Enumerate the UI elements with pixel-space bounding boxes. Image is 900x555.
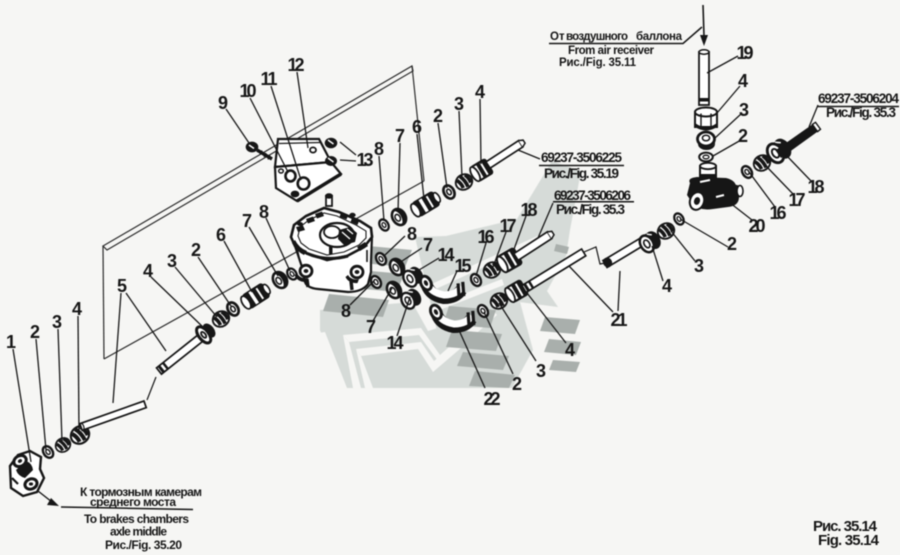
svg-text:16: 16	[770, 203, 787, 223]
svg-text:4: 4	[475, 82, 485, 102]
svg-text:среднего моста: среднего моста	[90, 495, 176, 509]
svg-text:21: 21	[611, 310, 628, 330]
svg-text:4: 4	[72, 299, 82, 319]
svg-text:69237-3506225: 69237-3506225	[541, 150, 622, 165]
svg-text:Fig. 35.14: Fig. 35.14	[818, 532, 880, 549]
svg-text:5: 5	[117, 276, 127, 296]
svg-text:Рис./Fig. 35.3: Рис./Fig. 35.3	[556, 202, 625, 217]
svg-text:7: 7	[366, 317, 376, 337]
svg-text:10: 10	[240, 81, 257, 101]
svg-text:3: 3	[454, 94, 464, 114]
svg-text:3: 3	[52, 312, 62, 332]
svg-text:axle middle: axle middle	[110, 525, 167, 539]
svg-text:14: 14	[387, 333, 404, 353]
svg-text:11: 11	[261, 69, 278, 89]
svg-text:8: 8	[259, 202, 269, 222]
svg-text:18: 18	[521, 200, 538, 220]
svg-text:3: 3	[536, 361, 546, 381]
svg-text:2: 2	[727, 234, 737, 254]
svg-text:2: 2	[191, 240, 201, 260]
svg-text:19: 19	[737, 43, 754, 63]
svg-text:17: 17	[500, 216, 517, 236]
svg-text:8: 8	[374, 139, 384, 159]
svg-text:2: 2	[738, 126, 748, 146]
svg-text:22: 22	[484, 389, 501, 409]
svg-text:баллона: баллона	[636, 31, 683, 43]
svg-text:15: 15	[455, 256, 472, 276]
svg-text:7: 7	[395, 126, 405, 146]
svg-text:1: 1	[6, 332, 16, 352]
svg-text:20: 20	[749, 216, 766, 236]
svg-text:3: 3	[739, 100, 749, 120]
svg-text:3: 3	[694, 256, 704, 276]
svg-text:16: 16	[478, 227, 495, 247]
svg-text:Рис./Fig. 35.19: Рис./Fig. 35.19	[544, 166, 619, 181]
svg-text:6: 6	[216, 225, 226, 245]
svg-text:8: 8	[341, 301, 351, 321]
svg-text:13: 13	[357, 150, 374, 170]
svg-text:Рис./Fig. 35.3: Рис./Fig. 35.3	[826, 105, 896, 120]
svg-text:3: 3	[167, 251, 177, 271]
svg-text:4: 4	[662, 276, 672, 296]
svg-text:Рис./Fig. 35.20: Рис./Fig. 35.20	[105, 538, 182, 552]
svg-text:2: 2	[30, 322, 40, 342]
svg-text:69237-3506206: 69237-3506206	[554, 188, 631, 203]
svg-text:6: 6	[412, 117, 422, 137]
svg-text:Рис./Fig. 35.11: Рис./Fig. 35.11	[559, 57, 637, 69]
svg-text:12: 12	[288, 55, 305, 75]
svg-text:4: 4	[143, 261, 153, 281]
svg-text:17: 17	[789, 190, 806, 210]
svg-text:воздушного: воздушного	[566, 31, 628, 43]
svg-text:2: 2	[433, 106, 443, 126]
svg-text:2: 2	[512, 374, 522, 394]
svg-text:9: 9	[218, 93, 228, 113]
svg-text:From air receiver: From air receiver	[568, 45, 655, 57]
svg-text:8: 8	[407, 224, 417, 244]
svg-text:4: 4	[565, 340, 575, 360]
svg-text:7: 7	[242, 211, 252, 231]
svg-text:7: 7	[423, 235, 433, 255]
svg-text:14: 14	[438, 245, 455, 265]
svg-text:18: 18	[808, 177, 825, 197]
svg-text:От: От	[550, 31, 565, 43]
svg-text:69237-3506204: 69237-3506204	[818, 91, 899, 106]
svg-text:4: 4	[738, 71, 748, 91]
